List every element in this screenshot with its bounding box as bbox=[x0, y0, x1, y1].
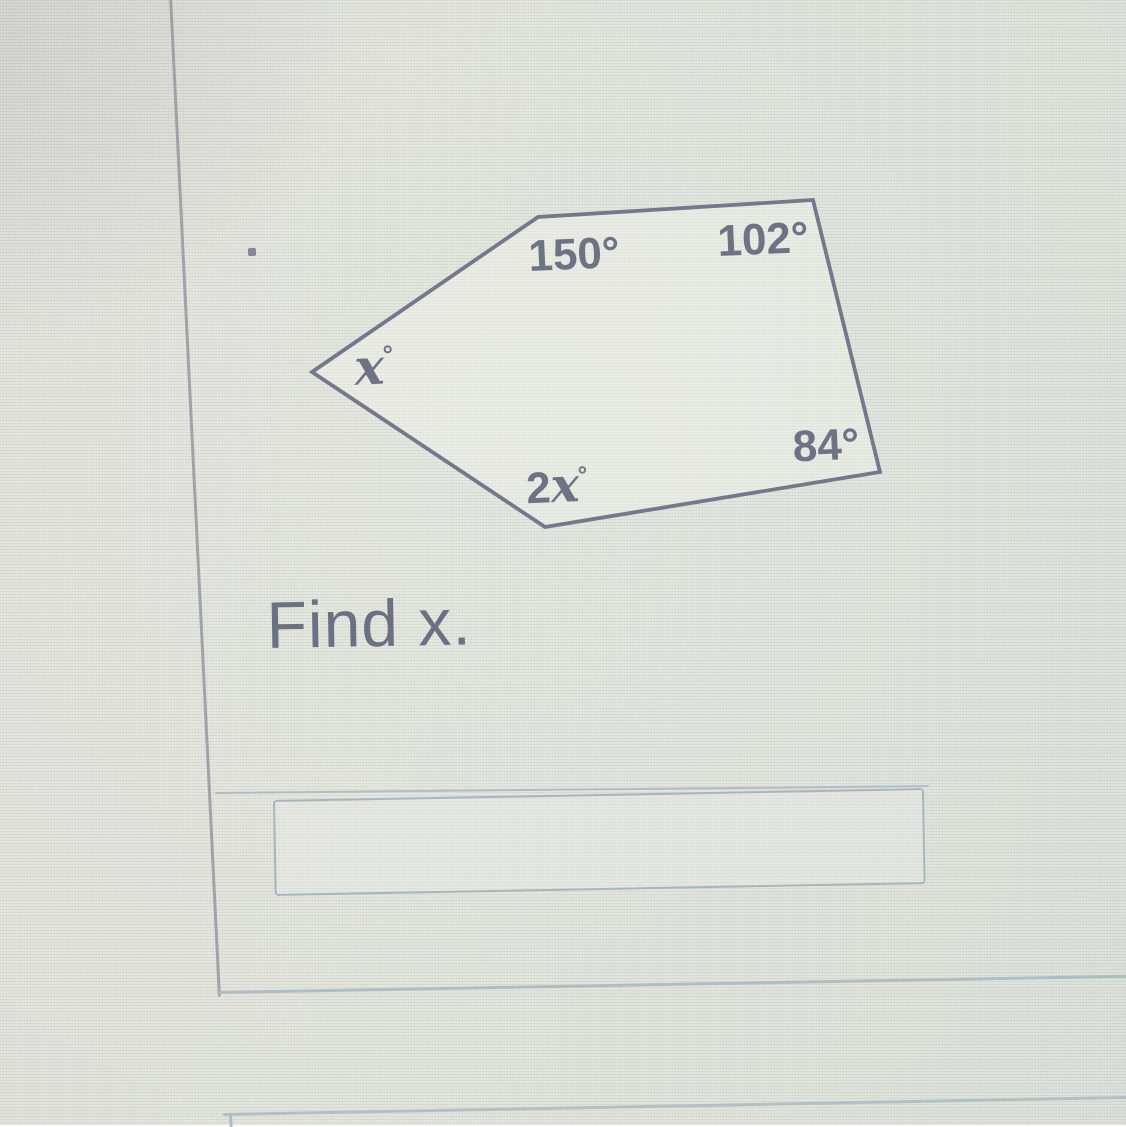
angle-label-top-left: 150° bbox=[528, 231, 621, 279]
pentagon-diagram bbox=[0, 0, 1126, 1125]
bullet-dot-icon bbox=[248, 248, 256, 256]
answer-input[interactable] bbox=[273, 788, 926, 896]
degree-symbol: ° bbox=[577, 462, 588, 489]
angle-coefficient: 2 bbox=[525, 463, 552, 513]
degree-symbol: ° bbox=[382, 339, 394, 369]
question-instruction: Find x. bbox=[266, 588, 472, 658]
angle-label-left: x° bbox=[353, 341, 394, 393]
angle-label-bottom: 2x° bbox=[525, 461, 589, 512]
angle-variable: x bbox=[353, 337, 383, 397]
screen-photo: 150° 102° x° 84° 2x° Find x. bbox=[0, 0, 1126, 1125]
next-section-left-edge bbox=[229, 1114, 233, 1127]
angle-label-top-right: 102° bbox=[717, 216, 810, 264]
angle-variable: x bbox=[549, 457, 578, 514]
angle-label-bottom-right: 84° bbox=[792, 423, 860, 470]
